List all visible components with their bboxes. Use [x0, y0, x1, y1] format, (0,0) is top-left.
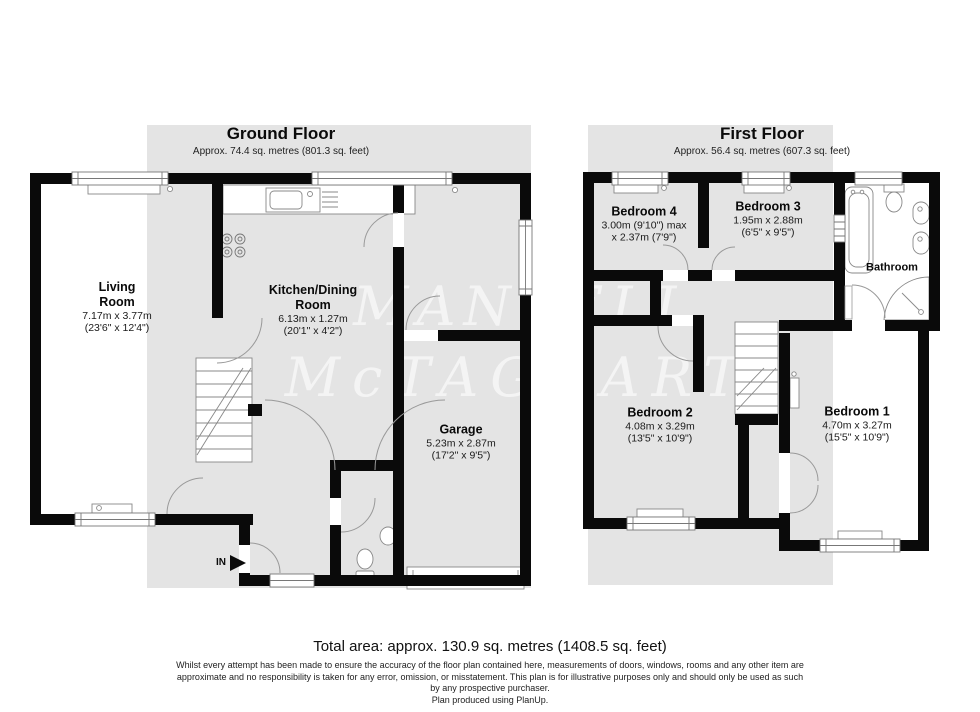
first-floor-subtitle: Approx. 56.4 sq. metres (607.3 sq. feet) [674, 146, 850, 158]
door-arc [852, 285, 885, 318]
room-label-bedroom-2: Bedroom 2 4.08m x 3.29m (13'5" x 10'9") [625, 405, 694, 445]
room-label-kitchen-dining: Kitchen/Dining Room 6.13m x 1.27m (20'1"… [269, 283, 357, 337]
ground-floor-header: Ground Floor Approx. 74.4 sq. metres (80… [193, 124, 369, 158]
floor-plan-svg: MANSELL McTAGGART [0, 0, 980, 712]
first-floor-title: First Floor [674, 124, 850, 144]
bathtub-icon [845, 187, 873, 273]
room-size-metric: 4.70m x 3.27m [822, 419, 891, 431]
room-label-bathroom: Bathroom [866, 262, 918, 275]
room-size-imperial: (23'6" x 12'4") [82, 322, 151, 334]
room-size-imperial: (15'5" x 10'9") [822, 431, 891, 443]
total-area-text: Total area: approx. 130.9 sq. metres (14… [0, 638, 980, 655]
window [72, 172, 168, 185]
watermark-line2: McTAGGART [284, 346, 752, 409]
window [75, 513, 155, 526]
room-label-bedroom-3: Bedroom 3 1.95m x 2.88m (6'5" x 9'5") [733, 199, 802, 239]
window [312, 172, 452, 185]
room-label-garage: Garage 5.23m x 2.87m (17'2" x 9'5") [426, 422, 495, 462]
basin-icon [913, 202, 929, 254]
room-label-bedroom-4: Bedroom 4 3.00m (9'10") max x 2.37m (7'9… [601, 204, 686, 244]
room-name: Bedroom 4 [601, 204, 686, 219]
window [519, 220, 532, 295]
disclaimer-text: Whilst every attempt has been made to en… [0, 660, 980, 706]
room-name: Bedroom 1 [822, 404, 891, 419]
window [627, 517, 695, 530]
room-label-living-room: Living Room 7.17m x 3.77m (23'6" x 12'4"… [82, 280, 151, 334]
window [855, 172, 902, 185]
room-size-metric: 6.13m x 1.27m [269, 312, 357, 324]
toilet-icon [884, 184, 904, 212]
room-size-imperial: (20'1" x 4'2") [269, 325, 357, 337]
floor-plan-page: MANSELL McTAGGART [0, 0, 980, 712]
window [612, 172, 668, 185]
room-size-imperial: (17'2" x 9'5") [426, 449, 495, 461]
room-name: Room [269, 298, 357, 313]
room-name: Living [82, 280, 151, 295]
shower-icon [884, 277, 929, 320]
window [742, 172, 790, 185]
disclaimer-line: approximate and no responsibility is tak… [0, 672, 980, 684]
kitchen-counter [223, 185, 415, 214]
room-label-bedroom-1: Bedroom 1 4.70m x 3.27m (15'5" x 10'9") [822, 404, 891, 444]
stairs-first [735, 322, 778, 414]
room-size-metric: 4.08m x 3.29m [625, 420, 694, 432]
window [820, 539, 900, 552]
room-name: Garage [426, 422, 495, 437]
ground-floor-subtitle: Approx. 74.4 sq. metres (801.3 sq. feet) [193, 146, 369, 158]
ground-floor-title: Ground Floor [193, 124, 369, 144]
room-name: Kitchen/Dining [269, 283, 357, 298]
room-name: Bedroom 3 [733, 199, 802, 214]
room-size-imperial: x 2.37m (7'9") [601, 231, 686, 243]
room-size-metric: 3.00m (9'10") max [601, 219, 686, 231]
room-name: Bedroom 2 [625, 405, 694, 420]
stairs-ground [196, 358, 252, 462]
disclaimer-line: Plan produced using PlanUp. [0, 695, 980, 707]
disclaimer-line: by any prospective purchaser. [0, 683, 980, 695]
room-size-metric: 5.23m x 2.87m [426, 437, 495, 449]
room-name: Room [82, 295, 151, 310]
room-size-imperial: (6'5" x 9'5") [733, 226, 802, 238]
entrance-in-label: IN [216, 557, 226, 569]
room-size-imperial: (13'5" x 10'9") [625, 432, 694, 444]
room-size-metric: 7.17m x 3.77m [82, 309, 151, 321]
towel-rail-icon [834, 215, 845, 242]
window [270, 574, 314, 587]
room-size-metric: 1.95m x 2.88m [733, 214, 802, 226]
disclaimer-line: Whilst every attempt has been made to en… [0, 660, 980, 672]
first-floor-header: First Floor Approx. 56.4 sq. metres (607… [674, 124, 850, 158]
